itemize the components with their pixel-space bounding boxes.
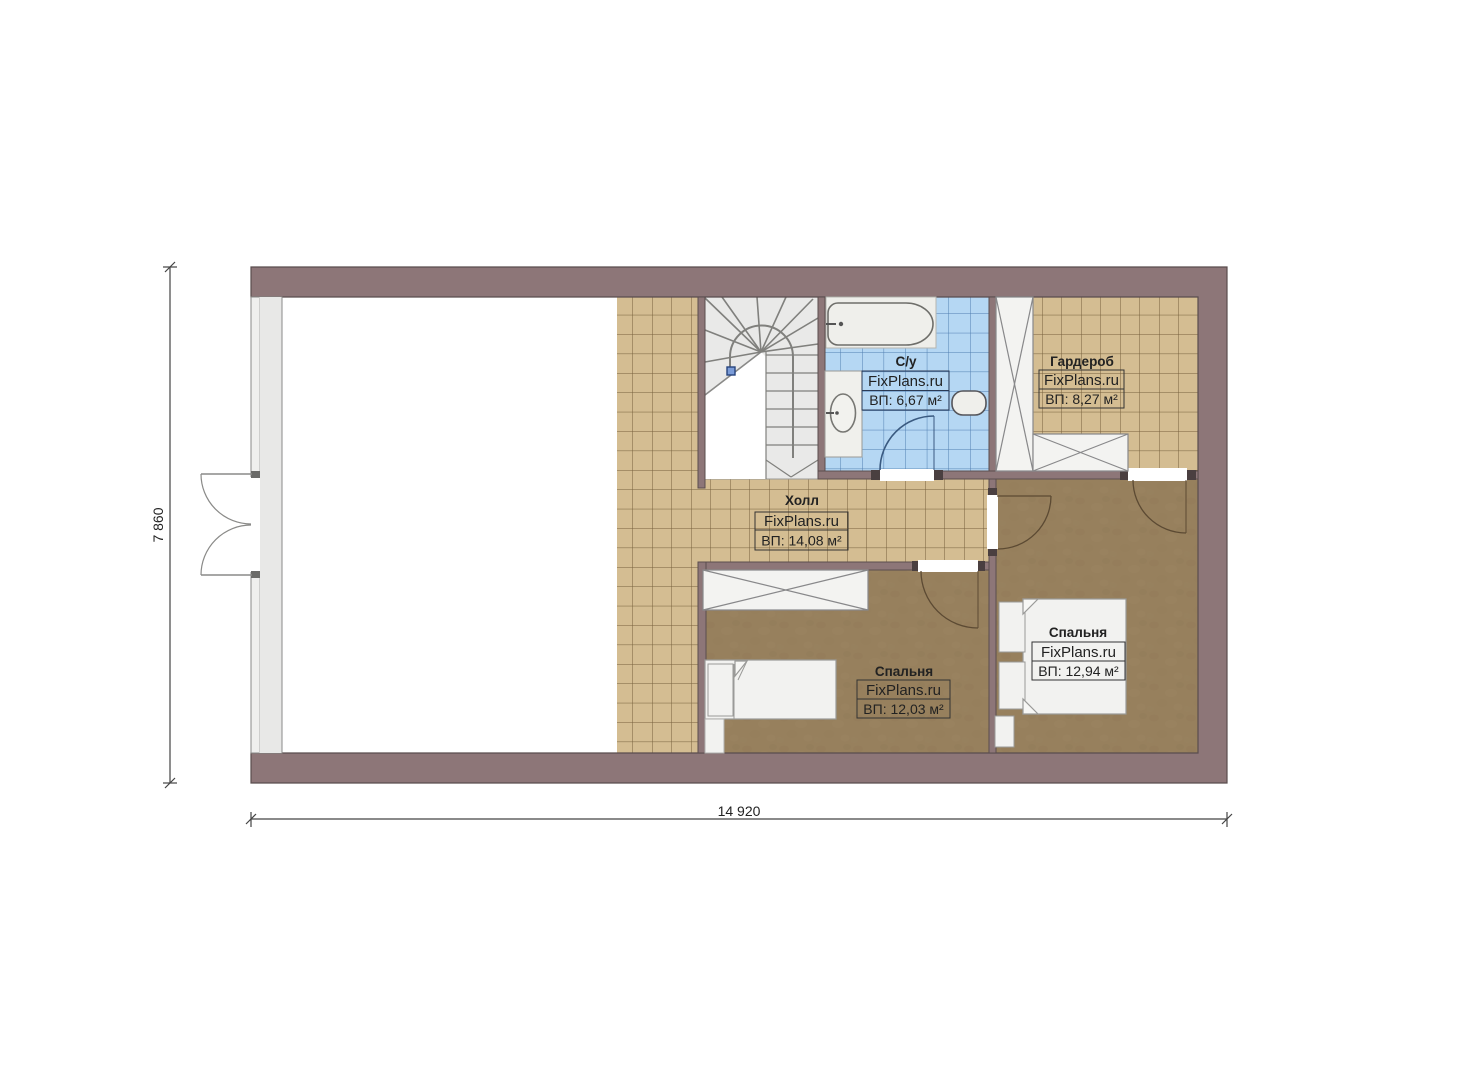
svg-text:Спальня: Спальня xyxy=(875,664,933,679)
svg-text:FixPlans.ru: FixPlans.ru xyxy=(866,682,941,699)
svg-text:7 860: 7 860 xyxy=(150,507,166,542)
svg-text:ВП: 12,03 м²: ВП: 12,03 м² xyxy=(863,701,944,717)
svg-text:Спальня: Спальня xyxy=(1049,625,1107,640)
svg-text:FixPlans.ru: FixPlans.ru xyxy=(1041,644,1116,661)
svg-text:14 920: 14 920 xyxy=(718,803,761,819)
svg-text:FixPlans.ru: FixPlans.ru xyxy=(764,513,839,530)
svg-text:Холл: Холл xyxy=(785,493,819,508)
svg-text:ВП: 14,08 м²: ВП: 14,08 м² xyxy=(761,533,842,549)
svg-text:С/у: С/у xyxy=(895,354,917,369)
svg-text:FixPlans.ru: FixPlans.ru xyxy=(1044,372,1119,389)
svg-text:ВП: 6,67 м²: ВП: 6,67 м² xyxy=(869,392,942,408)
svg-text:ВП: 12,94 м²: ВП: 12,94 м² xyxy=(1038,663,1119,679)
svg-text:FixPlans.ru: FixPlans.ru xyxy=(868,373,943,390)
svg-text:ВП: 8,27 м²: ВП: 8,27 м² xyxy=(1045,391,1118,407)
svg-text:Гардероб: Гардероб xyxy=(1050,354,1114,369)
